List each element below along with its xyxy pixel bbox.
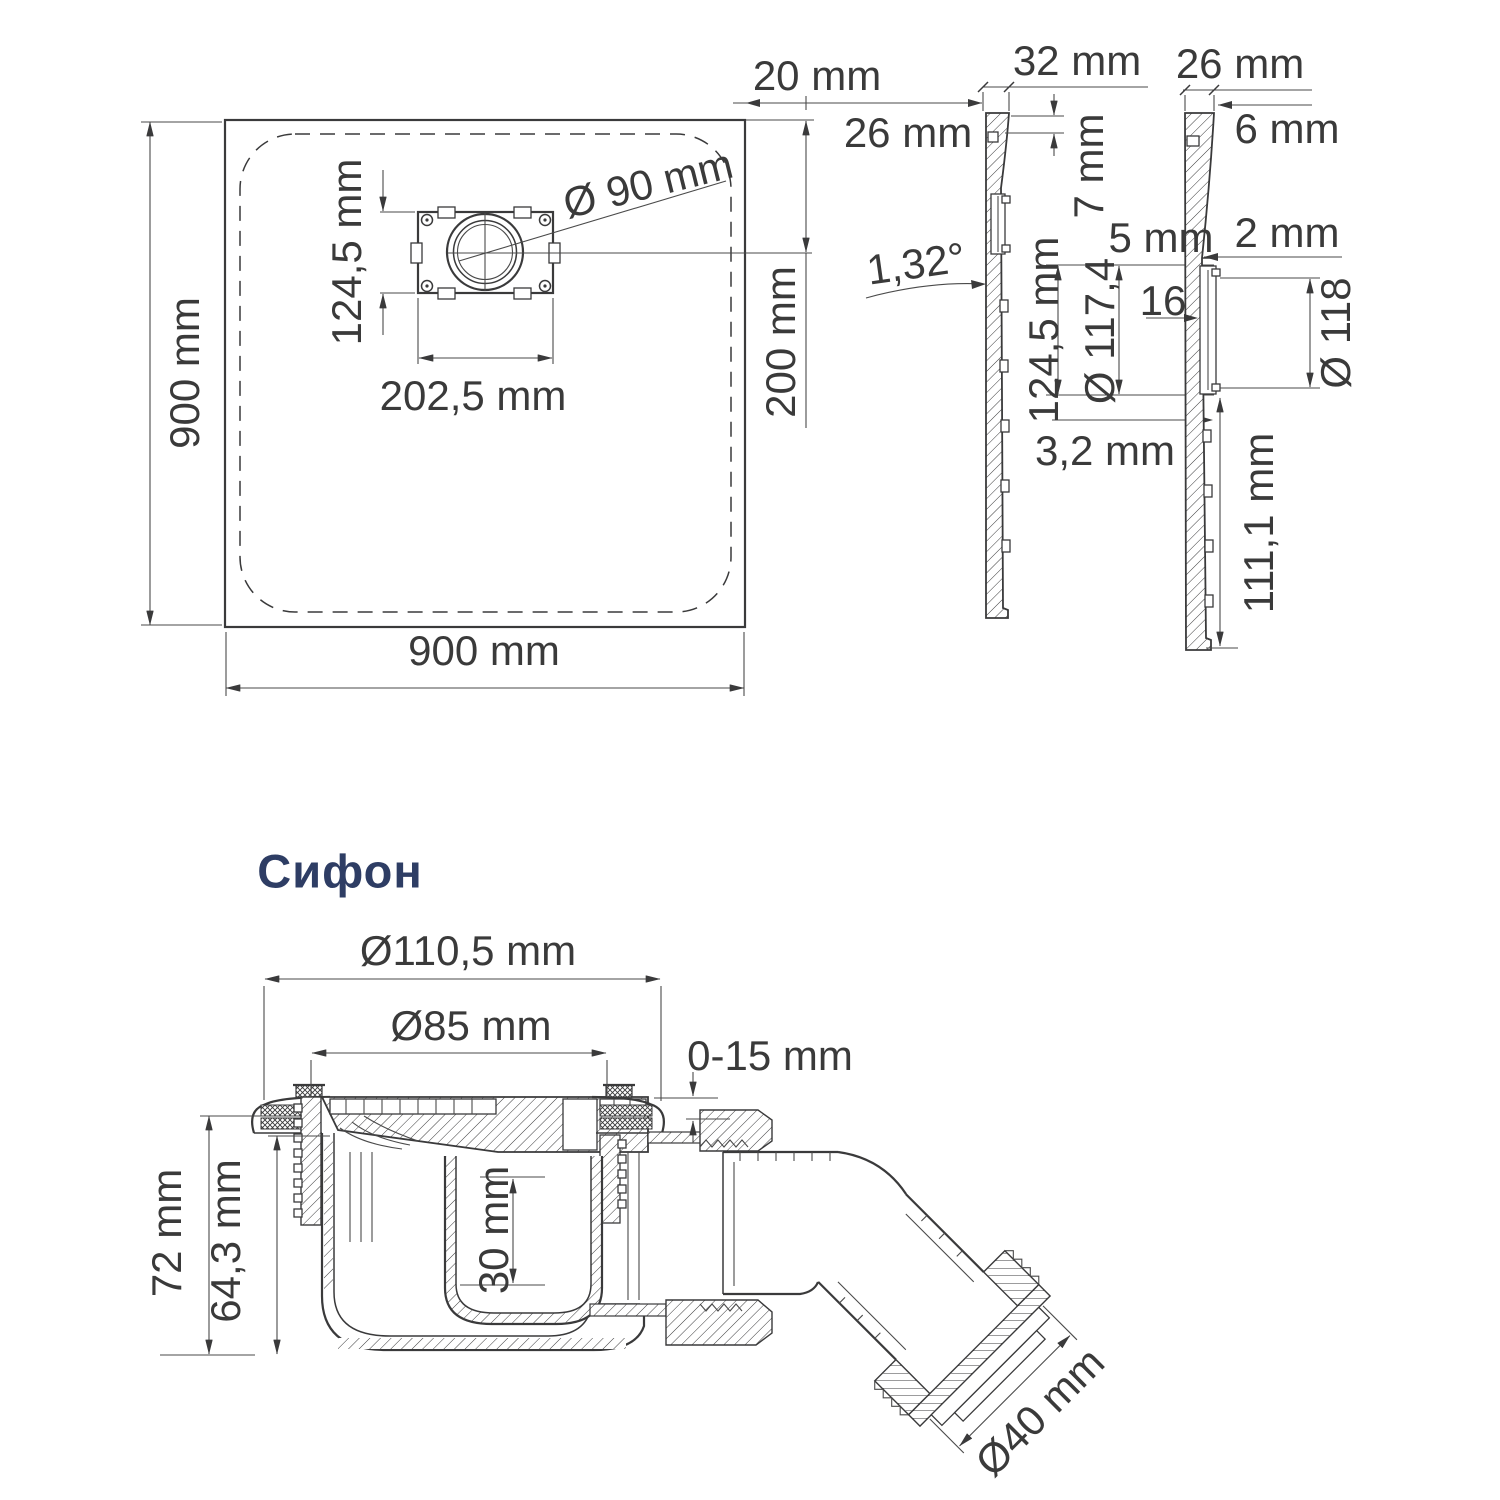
dim-siphon-bowl-diameter-label: Ø85 mm [390, 1005, 551, 1047]
dim-siphon-adjustment-label: 0-15 mm [687, 1035, 853, 1077]
dim-edge-thickness-label: 26 mm [844, 112, 972, 154]
dim-section-a-top-width-label: 32 mm [1013, 40, 1141, 82]
technical-drawing-page: 900 mm 900 mm 124,5 mm 202,5 mm Ø 90 mm … [0, 0, 1500, 1500]
dim-section-b-notch-label: 16 [1140, 280, 1187, 322]
dim-siphon-flange-diameter-label: Ø110,5 mm [360, 930, 576, 972]
dim-section-b-top-edge-label: 6 mm [1235, 108, 1340, 150]
siphon-top-plate [322, 1097, 648, 1152]
dim-siphon-total-height-label: 72 mm [146, 1169, 188, 1297]
siphon-drawing [160, 979, 1090, 1466]
dim-drain-center-label: 200 mm [760, 266, 802, 418]
dim-section-a-lip-height-label: 7 mm [1068, 114, 1110, 219]
dim-drain-offset-top-label: 20 mm [753, 55, 881, 97]
siphon-title: Сифон [257, 848, 422, 895]
dim-drain-box-width-label: 202,5 mm [380, 375, 567, 417]
dim-siphon-body-height-label: 64,3 mm [205, 1159, 247, 1322]
dim-section-a-bottom-thickness-label: 3,2 mm [1035, 430, 1175, 472]
dim-tray-side-label: 900 mm [164, 297, 206, 449]
dim-tray-bottom-label: 900 mm [408, 630, 560, 672]
siphon-left-flange [252, 1085, 330, 1225]
dim-drain-box-height-label: 124,5 mm [326, 159, 368, 346]
dim-section-a-opening-height-label: 124,5 mm [1023, 237, 1065, 424]
dim-section-b-top-width-label: 26 mm [1176, 43, 1304, 85]
dim-section-b-lower-height-label: 111,1 mm [1238, 433, 1280, 614]
dim-siphon-cup-depth-label: 30 mm [473, 1166, 515, 1294]
dim-section-b-step-label: 2 mm [1235, 212, 1340, 254]
dim-section-a-lip-offset-label: 5 mm [1109, 217, 1214, 259]
dim-section-a-opening-diameter-label: Ø 117,4 [1079, 258, 1121, 404]
dim-section-b-opening-diameter-label: Ø 118 [1315, 277, 1357, 388]
